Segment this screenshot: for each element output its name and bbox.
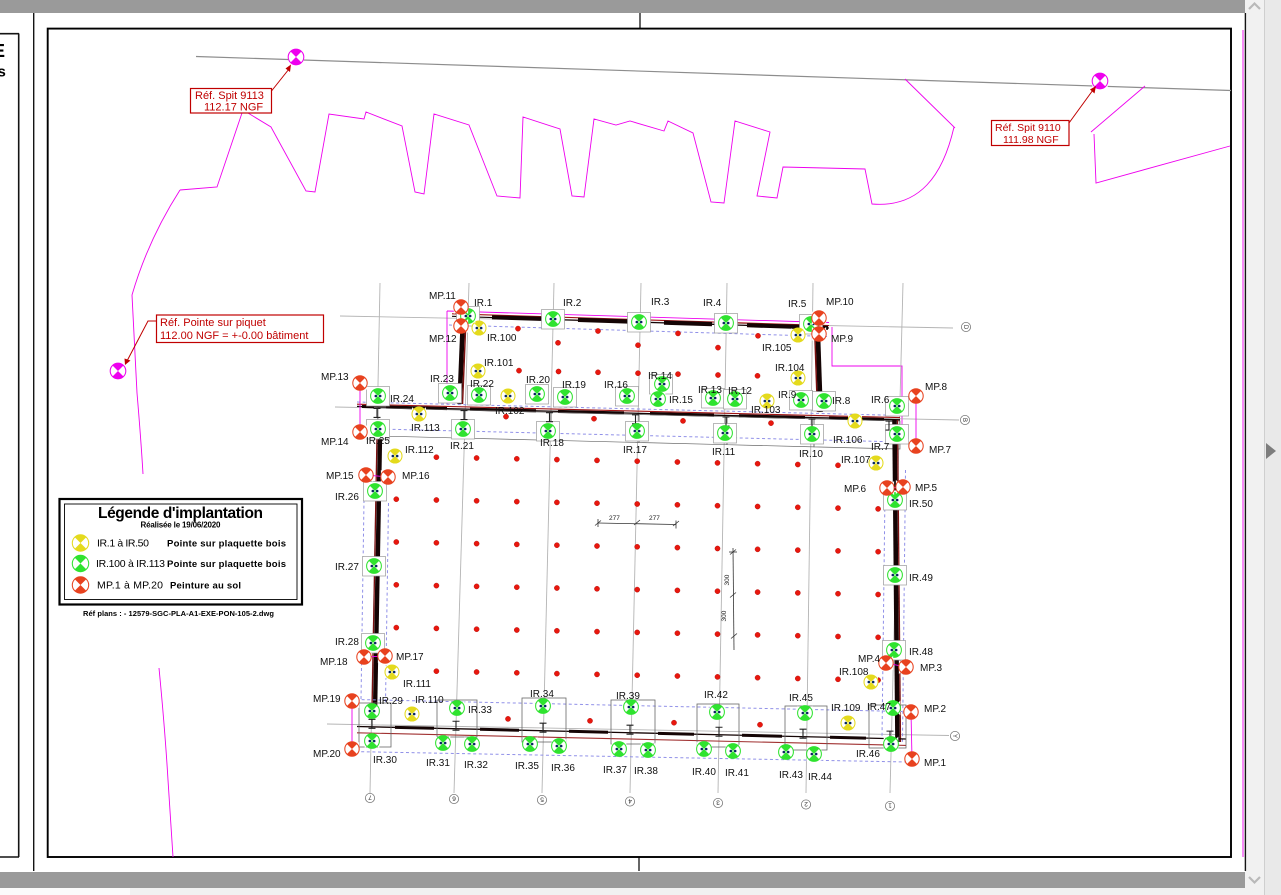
svg-text:MP.9: MP.9 — [831, 334, 853, 345]
svg-text:IR.47: IR.47 — [867, 702, 891, 713]
svg-text:IR.42: IR.42 — [704, 690, 728, 701]
svg-text:IR.6: IR.6 — [871, 395, 890, 406]
svg-text:Réf plans : - 12579-SGC-PLA-A: Réf plans : - 12579-SGC-PLA-A1-EXE-PON-1… — [83, 609, 274, 618]
svg-text:Réf. Spit 9110: Réf. Spit 9110 — [995, 122, 1061, 134]
svg-text:IR.39: IR.39 — [616, 691, 640, 702]
svg-text:IR.9: IR.9 — [778, 390, 797, 401]
svg-text:IR.103: IR.103 — [751, 405, 781, 416]
svg-text:IR.50: IR.50 — [909, 499, 933, 510]
svg-text:IR.22: IR.22 — [470, 379, 494, 390]
svg-text:IR.44: IR.44 — [808, 772, 832, 783]
svg-text:IR.34: IR.34 — [530, 689, 554, 700]
svg-text:IR.35: IR.35 — [515, 761, 539, 772]
svg-text:5: 5 — [540, 796, 544, 803]
svg-text:MP.4: MP.4 — [858, 654, 880, 665]
svg-text:MP.7: MP.7 — [929, 445, 951, 456]
svg-text:IR.48: IR.48 — [909, 647, 933, 658]
svg-text:IR.33: IR.33 — [468, 705, 492, 716]
svg-text:IR.37: IR.37 — [603, 765, 627, 776]
svg-text:IR.104: IR.104 — [775, 363, 805, 374]
svg-text:MP.1: MP.1 — [924, 758, 946, 769]
svg-text:Réf. Pointe sur piquet: Réf. Pointe sur piquet — [160, 317, 266, 329]
svg-text:IR.43: IR.43 — [779, 770, 803, 781]
svg-text:E: E — [0, 41, 5, 61]
svg-text:IR.5: IR.5 — [788, 299, 807, 310]
svg-text:300: 300 — [721, 610, 728, 621]
svg-text:IR.46: IR.46 — [856, 749, 880, 760]
svg-text:IR.15: IR.15 — [669, 395, 693, 406]
svg-text:IR.20: IR.20 — [526, 375, 550, 386]
svg-text:IR.10: IR.10 — [799, 449, 823, 460]
svg-text:277: 277 — [609, 515, 620, 522]
svg-text:Y: Y — [951, 734, 957, 738]
svg-text:MP.10: MP.10 — [826, 297, 854, 308]
svg-text:IR.112: IR.112 — [405, 445, 434, 456]
svg-text:IR.40: IR.40 — [692, 767, 716, 778]
svg-text:IR.107: IR.107 — [841, 455, 871, 466]
svg-text:IR.18: IR.18 — [540, 438, 564, 449]
svg-text:IR.36: IR.36 — [551, 763, 575, 774]
svg-text:112.00 NGF = +-0.00 bâtiment: 112.00 NGF = +-0.00 bâtiment — [160, 330, 308, 342]
svg-text:3: 3 — [716, 799, 720, 806]
svg-text:112.17 NGF: 112.17 NGF — [204, 102, 263, 114]
svg-text:IR.1 à IR.50: IR.1 à IR.50 — [97, 538, 149, 550]
svg-text:B: B — [961, 418, 967, 422]
svg-text:IR.13: IR.13 — [698, 385, 722, 396]
svg-text:IR.7: IR.7 — [871, 442, 890, 453]
svg-text:2: 2 — [804, 800, 808, 807]
svg-text:IR.21: IR.21 — [450, 441, 474, 452]
svg-text:MP.20: MP.20 — [313, 749, 341, 760]
svg-text:IR.4: IR.4 — [703, 298, 722, 309]
svg-text:MP.18: MP.18 — [320, 657, 348, 668]
svg-text:IR.27: IR.27 — [335, 562, 359, 573]
svg-text:Pointe sur plaquette bois: Pointe sur plaquette bois — [167, 559, 286, 570]
svg-text:IR.1: IR.1 — [474, 298, 493, 309]
svg-text:Légende d'implantation: Légende d'implantation — [98, 505, 263, 522]
svg-text:IR.49: IR.49 — [909, 573, 933, 584]
svg-text:IR.29: IR.29 — [379, 696, 403, 707]
svg-text:IR.106: IR.106 — [833, 435, 863, 446]
svg-text:IR.3: IR.3 — [651, 297, 670, 308]
svg-text:IR.31: IR.31 — [426, 758, 450, 769]
svg-text:IR.111: IR.111 — [403, 679, 431, 690]
svg-text:s: s — [0, 64, 6, 81]
svg-text:IR.113: IR.113 — [411, 423, 440, 434]
svg-text:IR.100: IR.100 — [487, 333, 517, 344]
svg-text:MP.15: MP.15 — [326, 471, 354, 482]
svg-text:IR.26: IR.26 — [335, 492, 359, 503]
svg-text:IR.30: IR.30 — [373, 755, 397, 766]
svg-text:IR.17: IR.17 — [623, 445, 647, 456]
svg-text:Réf. Spit 9113: Réf. Spit 9113 — [195, 90, 264, 102]
svg-text:111.98 NGF: 111.98 NGF — [1003, 134, 1059, 146]
svg-text:6: 6 — [452, 795, 456, 802]
svg-text:IR.32: IR.32 — [464, 760, 488, 771]
svg-text:MP.14: MP.14 — [321, 437, 349, 448]
svg-text:IR.41: IR.41 — [725, 768, 749, 779]
svg-text:277: 277 — [649, 515, 660, 522]
svg-text:IR.25: IR.25 — [366, 436, 390, 447]
svg-text:Réalisée le 19/06/2020: Réalisée le 19/06/2020 — [141, 521, 222, 530]
svg-text:IR.110: IR.110 — [415, 695, 444, 706]
svg-text:1: 1 — [888, 802, 892, 809]
svg-text:IR.12: IR.12 — [728, 386, 752, 397]
svg-text:IR.102: IR.102 — [495, 406, 525, 417]
svg-text:IR.101: IR.101 — [484, 358, 514, 369]
svg-text:MP.3: MP.3 — [920, 663, 942, 674]
svg-text:MP.12: MP.12 — [429, 334, 457, 345]
svg-text:IR.11: IR.11 — [712, 447, 736, 458]
svg-text:300: 300 — [724, 574, 731, 585]
svg-text:IR.19: IR.19 — [562, 380, 586, 391]
svg-text:MP.16: MP.16 — [402, 471, 430, 482]
svg-text:Pointe sur plaquette bois: Pointe sur plaquette bois — [167, 539, 286, 550]
svg-text:IR.2: IR.2 — [563, 298, 582, 309]
svg-text:IR.28: IR.28 — [335, 637, 359, 648]
svg-text:MP.19: MP.19 — [313, 694, 341, 705]
svg-text:IR.109: IR.109 — [831, 703, 861, 714]
svg-text:D: D — [962, 325, 968, 330]
svg-text:IR.105: IR.105 — [762, 343, 792, 354]
svg-text:IR.8: IR.8 — [832, 396, 851, 407]
svg-text:IR.23: IR.23 — [430, 374, 454, 385]
svg-text:MP.5: MP.5 — [915, 483, 937, 494]
svg-text:MP.6: MP.6 — [844, 484, 866, 495]
svg-text:MP.17: MP.17 — [396, 652, 424, 663]
svg-text:IR.100 à IR.113: IR.100 à IR.113 — [96, 558, 165, 570]
svg-text:IR.108: IR.108 — [839, 667, 869, 678]
svg-text:MP.8: MP.8 — [925, 382, 947, 393]
svg-text:4: 4 — [628, 797, 632, 804]
svg-text:IR.16: IR.16 — [604, 380, 628, 391]
svg-text:IR.24: IR.24 — [390, 394, 414, 405]
svg-text:Peinture au sol: Peinture au sol — [170, 581, 241, 592]
svg-text:MP.13: MP.13 — [321, 372, 349, 383]
svg-text:MP.2: MP.2 — [924, 704, 946, 715]
svg-text:7: 7 — [368, 794, 372, 801]
svg-text:MP.11: MP.11 — [429, 291, 456, 302]
svg-text:IR.38: IR.38 — [634, 766, 658, 777]
svg-text:IR.14: IR.14 — [648, 371, 672, 382]
svg-text:MP.1 à MP.20: MP.1 à MP.20 — [97, 580, 163, 592]
svg-text:IR.45: IR.45 — [789, 693, 813, 704]
